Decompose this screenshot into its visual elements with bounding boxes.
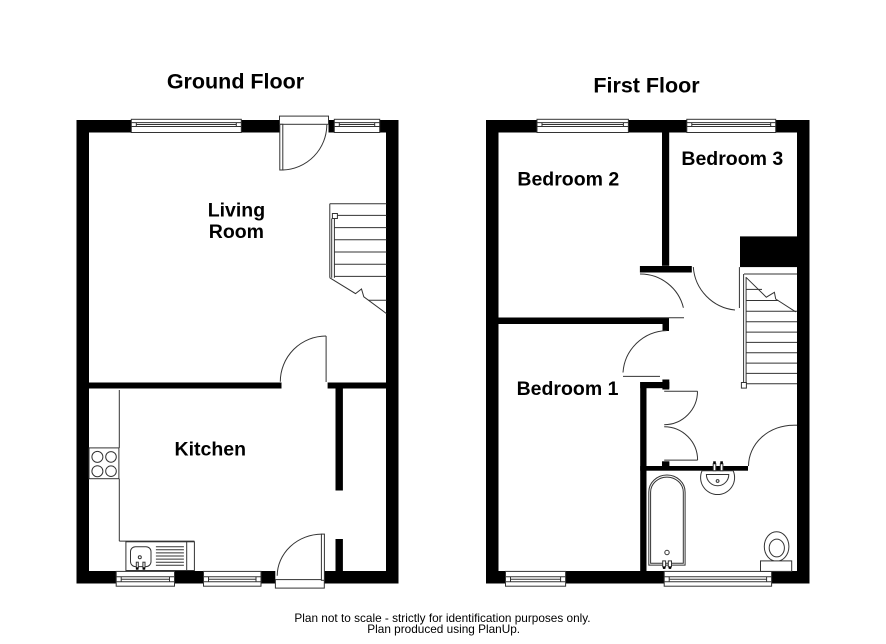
svg-text:Kitchen: Kitchen xyxy=(175,439,247,461)
svg-text:Bedroom 2: Bedroom 2 xyxy=(517,169,619,191)
svg-text:First Floor: First Floor xyxy=(593,73,700,97)
svg-text:Bedroom 1: Bedroom 1 xyxy=(517,378,619,400)
svg-text:Plan produced using PlanUp.: Plan produced using PlanUp. xyxy=(367,622,520,636)
svg-text:Living: Living xyxy=(208,200,265,222)
svg-text:Ground Floor: Ground Floor xyxy=(167,69,305,93)
svg-text:Room: Room xyxy=(209,221,264,243)
svg-text:Bedroom 3: Bedroom 3 xyxy=(681,148,783,170)
